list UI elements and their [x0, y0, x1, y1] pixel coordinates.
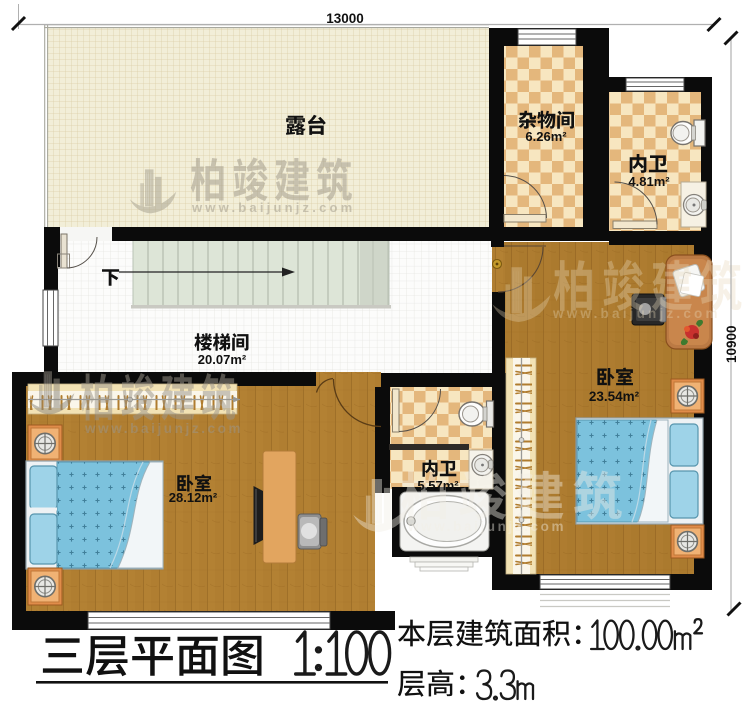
- svg-text:6.26m²: 6.26m²: [525, 129, 567, 144]
- svg-text:www.baijunjz.com: www.baijunjz.com: [84, 421, 243, 436]
- svg-text:www.baijunjz.com: www.baijunjz.com: [407, 519, 566, 534]
- svg-text:5.57m²: 5.57m²: [417, 478, 459, 493]
- svg-text:www.baijunjz.com: www.baijunjz.com: [552, 306, 721, 321]
- svg-text:20.07m²: 20.07m²: [198, 352, 247, 367]
- svg-text:13000: 13000: [326, 11, 364, 26]
- svg-text:www.baijunjz.com: www.baijunjz.com: [191, 200, 355, 215]
- svg-text:4.81m²: 4.81m²: [628, 174, 670, 189]
- svg-text:23.54m²: 23.54m²: [589, 389, 640, 404]
- svg-text:10900: 10900: [724, 325, 739, 363]
- svg-text:28.12m²: 28.12m²: [169, 490, 218, 505]
